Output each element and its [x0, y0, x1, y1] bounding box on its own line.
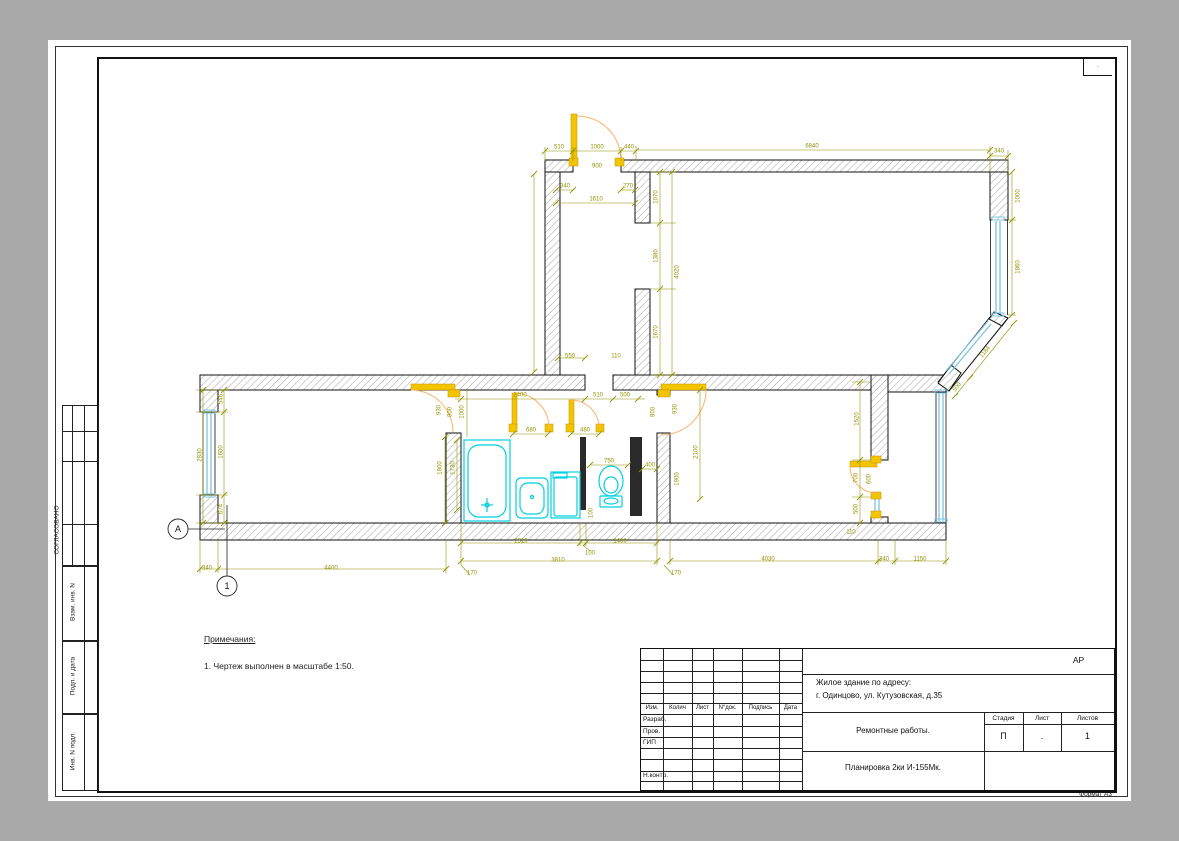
- cell-divider: [84, 406, 85, 566]
- notes-title: Примечания:: [204, 634, 255, 644]
- sheets-value: 1: [1061, 731, 1114, 741]
- sheet-name: Планировка 2ки И-155Мк.: [802, 763, 984, 772]
- cell-divider: [641, 703, 802, 704]
- left-stamp-table: [62, 405, 99, 567]
- col-list: Лист: [692, 705, 713, 711]
- cell-divider: [63, 461, 98, 462]
- col-izm: Изм.: [641, 705, 663, 711]
- vzam-cell: [62, 565, 99, 642]
- cell-divider: [802, 712, 1114, 713]
- col-data: Дата: [779, 705, 802, 711]
- cell-divider: [641, 726, 802, 727]
- col-kol: Колич: [663, 705, 692, 711]
- row-gip: ГИП: [643, 739, 656, 746]
- inv-label: Инв. N подл.: [70, 732, 77, 770]
- cell-divider: [641, 781, 802, 782]
- title-block: АР Жилое здание по адресу: г. Одинцово, …: [640, 648, 1115, 791]
- cell-divider: [72, 406, 73, 566]
- col-ndok: N°док.: [713, 705, 742, 711]
- doc-code: АР: [1051, 655, 1106, 665]
- cell-divider: [641, 737, 802, 738]
- stage-label: Стадия: [984, 715, 1023, 722]
- row-razrab: Разраб.: [643, 716, 666, 723]
- cell-divider: [802, 751, 1114, 752]
- cell-divider: [802, 674, 1114, 675]
- object-line1: Жилое здание по адресу:: [816, 678, 911, 687]
- notes-item: 1. Чертеж выполнен в масштабе 1:50.: [204, 661, 354, 671]
- cell-divider: [63, 431, 98, 432]
- work-name: Ремонтные работы.: [802, 726, 984, 735]
- cell-divider: [84, 641, 85, 714]
- cell-divider: [84, 566, 85, 641]
- stage-value: П: [984, 731, 1023, 741]
- cell-divider: [641, 671, 802, 672]
- row-nkontr: Н.контр.: [643, 772, 668, 779]
- sheets-label: Листов: [1061, 715, 1114, 722]
- podp-cell: [62, 640, 99, 715]
- cell-divider: [641, 682, 802, 683]
- vzam-label: Взам. инв. N: [70, 583, 77, 621]
- approved-label: СОГЛАСОВАНО: [54, 505, 61, 554]
- cell-divider: [641, 660, 802, 661]
- cell-divider: [641, 693, 802, 694]
- drawing-viewport: . СОГЛАСОВАНО Взам. инв. N Подп. и дата …: [0, 0, 1179, 841]
- sheet-no-value: .: [1023, 731, 1061, 741]
- inv-cell: [62, 713, 99, 791]
- col-podpis: Подпись: [742, 705, 779, 711]
- object-line2: г. Одинцово, ул. Кутузовская, д.35: [816, 691, 942, 700]
- cell-divider: [984, 712, 985, 790]
- sheet-no-label: Лист: [1023, 715, 1061, 722]
- podp-label: Подп. и дата: [70, 657, 77, 695]
- cell-divider: [63, 524, 98, 525]
- format-label: Формат А3: [1020, 791, 1112, 798]
- document-number-box: .: [1083, 58, 1112, 76]
- cell-divider: [641, 759, 802, 760]
- cell-divider: [984, 724, 1114, 725]
- row-prov: Пров.: [643, 728, 660, 735]
- cell-divider: [641, 748, 802, 749]
- cell-divider: [641, 714, 802, 715]
- cell-divider: [84, 714, 85, 790]
- corner-dot: .: [1097, 63, 1099, 69]
